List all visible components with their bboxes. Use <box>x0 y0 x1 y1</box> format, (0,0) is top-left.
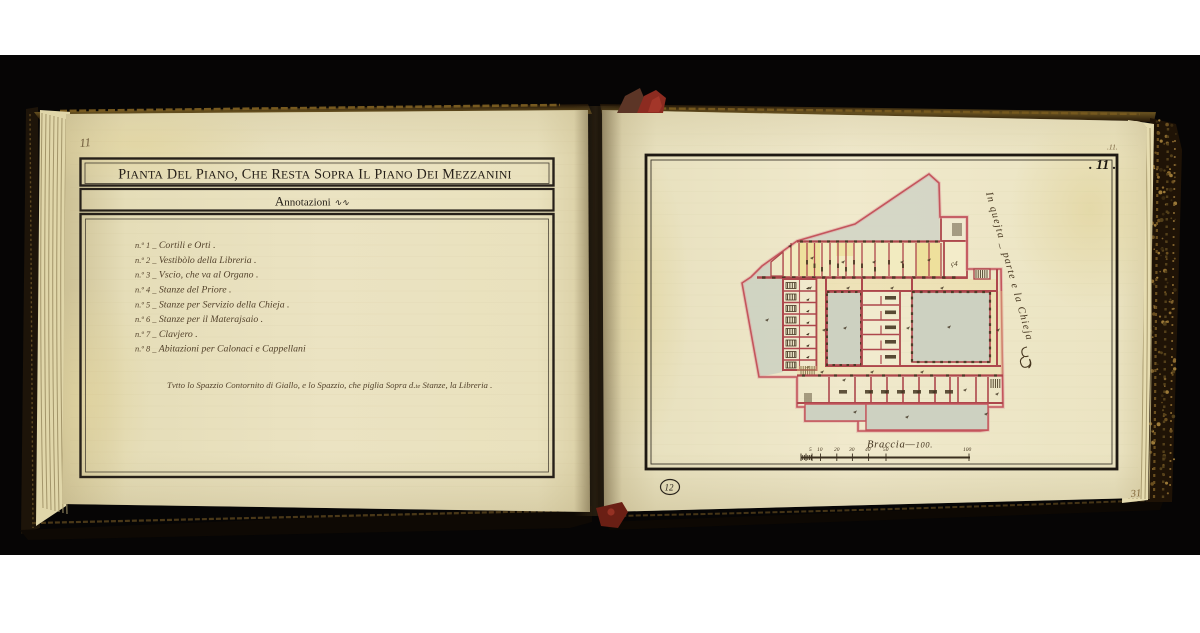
svg-text:n.º 8 _ Abitazioni per Calonac: n.º 8 _ Abitazioni per Calonaci e Cappel… <box>135 344 306 355</box>
svg-text:20: 20 <box>834 447 840 453</box>
svg-text:11: 11 <box>79 135 91 150</box>
svg-text:n.º 5 _ Stanze per Servizio de: n.º 5 _ Stanze per Servizio della Chieja… <box>135 299 290 310</box>
svg-text:31: 31 <box>1129 488 1141 500</box>
svg-text:n.º 4 _ Stanze del Priore .: n.º 4 _ Stanze del Priore . <box>135 284 231 295</box>
svg-text:PIANTA DEL PIANO, CHE RESTA SO: PIANTA DEL PIANO, CHE RESTA SOPRA IL PIA… <box>118 167 511 183</box>
svg-text:n.º 2 _ Vestibòlo della Librer: n.º 2 _ Vestibòlo della Libreria . <box>135 255 257 266</box>
svg-text:. 11 .: . 11 . <box>1089 158 1116 173</box>
svg-text:50: 50 <box>883 447 889 453</box>
svg-text:40: 40 <box>865 446 871 453</box>
svg-text:n.º 3 _ Vscio, che va al Organ: n.º 3 _ Vscio, che va al Organo . <box>135 270 258 281</box>
svg-text:5: 5 <box>809 447 812 453</box>
svg-text:n.º 6 _ Stanze per il Materajs: n.º 6 _ Stanze per il Materajsaio . <box>135 314 263 325</box>
svg-text:n.º 1 _ Cortili e Orti .: n.º 1 _ Cortili e Orti . <box>135 240 216 251</box>
svg-text:30: 30 <box>848 447 855 453</box>
svg-text:100: 100 <box>963 447 972 453</box>
svg-text:Braccia—100.: Braccia—100. <box>867 440 933 451</box>
svg-text:Tvtto lo Spazzio Contornito di: Tvtto lo Spazzio Contornito di Giallo, e… <box>167 380 492 390</box>
svg-text:.11.: .11. <box>1107 143 1118 152</box>
svg-text:ç4: ç4 <box>951 260 958 268</box>
svg-text:12: 12 <box>665 483 675 493</box>
svg-text:10: 10 <box>817 447 823 453</box>
svg-text:n.º 7 _ Clavjero .: n.º 7 _ Clavjero . <box>135 329 198 340</box>
